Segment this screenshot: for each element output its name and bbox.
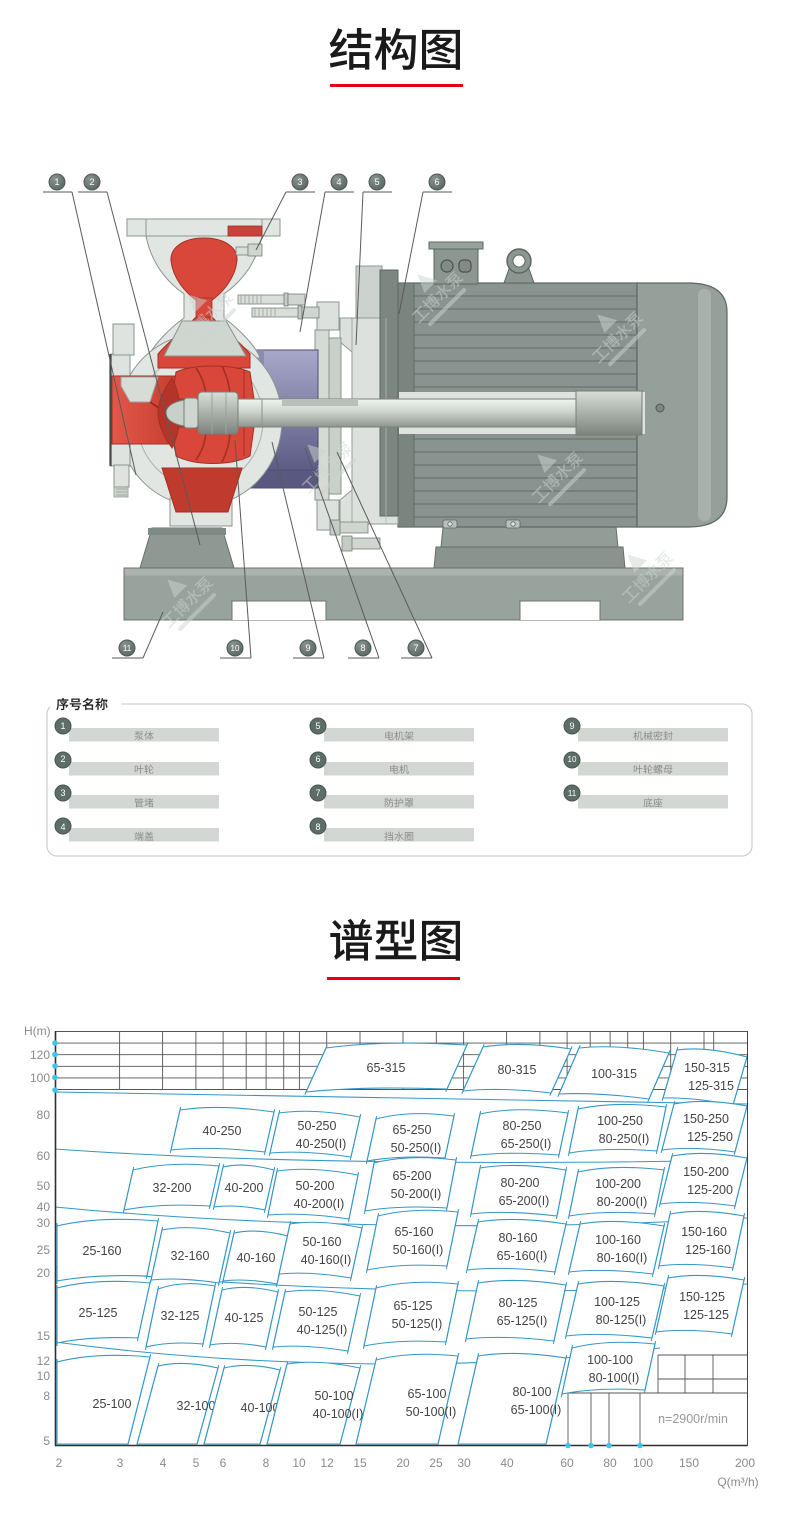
svg-text:50-125: 50-125 [299, 1305, 338, 1319]
svg-text:125-160: 125-160 [685, 1243, 731, 1257]
svg-text:65-100(I): 65-100(I) [511, 1403, 562, 1417]
svg-text:7: 7 [413, 643, 418, 653]
svg-text:150-250: 150-250 [683, 1112, 729, 1126]
svg-text:40-160(I): 40-160(I) [301, 1253, 352, 1267]
svg-text:100: 100 [30, 1071, 50, 1085]
svg-text:2: 2 [56, 1456, 63, 1470]
svg-text:100-160: 100-160 [595, 1233, 641, 1247]
svg-text:8: 8 [263, 1456, 270, 1470]
svg-text:6: 6 [220, 1456, 227, 1470]
svg-text:80-100: 80-100 [513, 1385, 552, 1399]
svg-text:80-125: 80-125 [499, 1296, 538, 1310]
svg-text:50-100(I): 50-100(I) [406, 1405, 457, 1419]
svg-text:40-200(I): 40-200(I) [294, 1197, 345, 1211]
svg-text:40-125: 40-125 [225, 1311, 264, 1325]
svg-text:2: 2 [60, 754, 65, 764]
svg-text:9: 9 [569, 721, 574, 731]
svg-text:3: 3 [117, 1456, 124, 1470]
svg-text:50-250: 50-250 [298, 1119, 337, 1133]
svg-text:40-125(I): 40-125(I) [297, 1323, 348, 1337]
svg-text:80-125(I): 80-125(I) [596, 1313, 647, 1327]
svg-text:200: 200 [735, 1456, 755, 1470]
svg-text:25-100: 25-100 [93, 1397, 132, 1411]
svg-text:65-125(I): 65-125(I) [497, 1314, 548, 1328]
svg-text:10: 10 [231, 644, 240, 653]
svg-text:50-200: 50-200 [296, 1179, 335, 1193]
svg-text:150-160: 150-160 [681, 1225, 727, 1239]
svg-text:80: 80 [37, 1108, 51, 1122]
svg-text:80-250: 80-250 [503, 1119, 542, 1133]
svg-text:40-100: 40-100 [241, 1401, 280, 1415]
svg-text:6: 6 [434, 177, 439, 187]
svg-text:10: 10 [292, 1456, 306, 1470]
svg-text:65-250: 65-250 [393, 1123, 432, 1137]
svg-text:120: 120 [30, 1048, 50, 1062]
svg-text:125-250: 125-250 [687, 1130, 733, 1144]
svg-text:15: 15 [37, 1329, 51, 1343]
svg-text:150-315: 150-315 [684, 1061, 730, 1075]
svg-text:100: 100 [633, 1456, 653, 1470]
svg-text:11: 11 [123, 644, 132, 653]
svg-text:8: 8 [43, 1389, 50, 1403]
svg-text:50-125(I): 50-125(I) [392, 1317, 443, 1331]
svg-text:8: 8 [315, 822, 320, 832]
svg-text:50-160(I): 50-160(I) [393, 1243, 444, 1257]
svg-text:80-250(I): 80-250(I) [599, 1132, 650, 1146]
svg-text:65-250(I): 65-250(I) [501, 1137, 552, 1151]
svg-text:80: 80 [603, 1456, 617, 1470]
svg-text:40-250(I): 40-250(I) [296, 1137, 347, 1151]
svg-text:125-125: 125-125 [683, 1308, 729, 1322]
svg-text:150-125: 150-125 [679, 1290, 725, 1304]
svg-text:65-160(I): 65-160(I) [497, 1249, 548, 1263]
svg-text:25: 25 [429, 1456, 443, 1470]
svg-text:40: 40 [37, 1200, 51, 1214]
svg-text:4: 4 [160, 1456, 167, 1470]
svg-text:4: 4 [336, 177, 341, 187]
svg-text:100-315: 100-315 [591, 1067, 637, 1081]
svg-text:65-100: 65-100 [408, 1387, 447, 1401]
svg-text:25: 25 [37, 1243, 51, 1257]
svg-text:5: 5 [193, 1456, 200, 1470]
svg-text:100-125: 100-125 [594, 1295, 640, 1309]
svg-text:6: 6 [315, 754, 320, 764]
svg-text:3: 3 [297, 177, 302, 187]
svg-text:150-200: 150-200 [683, 1165, 729, 1179]
svg-text:10: 10 [37, 1369, 51, 1383]
svg-text:50-250(I): 50-250(I) [391, 1141, 442, 1155]
svg-text:5: 5 [315, 721, 320, 731]
svg-text:Q(m³/h): Q(m³/h) [717, 1475, 758, 1489]
svg-text:50-200(I): 50-200(I) [391, 1187, 442, 1201]
svg-text:1: 1 [54, 177, 59, 187]
svg-text:5: 5 [374, 177, 379, 187]
svg-text:12: 12 [320, 1456, 334, 1470]
svg-text:7: 7 [315, 788, 320, 798]
svg-text:80-160(I): 80-160(I) [597, 1251, 648, 1265]
svg-text:40: 40 [500, 1456, 514, 1470]
svg-text:125-315: 125-315 [688, 1079, 734, 1093]
svg-text:40-160: 40-160 [237, 1251, 276, 1265]
svg-text:30: 30 [37, 1216, 51, 1230]
svg-text:32-200: 32-200 [153, 1181, 192, 1195]
svg-text:40-200: 40-200 [225, 1181, 264, 1195]
svg-text:50: 50 [37, 1179, 51, 1193]
svg-text:65-160: 65-160 [395, 1225, 434, 1239]
svg-text:100-100: 100-100 [587, 1353, 633, 1367]
svg-text:32-125: 32-125 [161, 1309, 200, 1323]
svg-text:5: 5 [43, 1434, 50, 1448]
svg-text:11: 11 [568, 789, 577, 798]
svg-text:n=2900r/min: n=2900r/min [658, 1412, 728, 1426]
svg-text:80-160: 80-160 [499, 1231, 538, 1245]
svg-text:1: 1 [60, 721, 65, 731]
svg-text:80-100(I): 80-100(I) [589, 1371, 640, 1385]
svg-text:65-200: 65-200 [393, 1169, 432, 1183]
svg-text:80-315: 80-315 [498, 1063, 537, 1077]
svg-text:60: 60 [37, 1149, 51, 1163]
svg-text:40-250: 40-250 [203, 1124, 242, 1138]
svg-text:60: 60 [560, 1456, 574, 1470]
svg-text:30: 30 [457, 1456, 471, 1470]
svg-text:125-200: 125-200 [687, 1183, 733, 1197]
svg-text:80-200(I): 80-200(I) [597, 1195, 648, 1209]
svg-text:25-160: 25-160 [83, 1244, 122, 1258]
svg-text:25-125: 25-125 [79, 1306, 118, 1320]
svg-text:3: 3 [60, 788, 65, 798]
svg-text:32-100: 32-100 [177, 1399, 216, 1413]
svg-text:10: 10 [568, 755, 577, 764]
svg-text:20: 20 [396, 1456, 410, 1470]
svg-text:50-160: 50-160 [303, 1235, 342, 1249]
svg-text:100-200: 100-200 [595, 1177, 641, 1191]
svg-text:20: 20 [37, 1266, 51, 1280]
svg-text:65-200(I): 65-200(I) [499, 1194, 550, 1208]
svg-text:8: 8 [360, 643, 365, 653]
svg-text:100-250: 100-250 [597, 1114, 643, 1128]
svg-text:65-125: 65-125 [394, 1299, 433, 1313]
svg-text:12: 12 [37, 1354, 51, 1368]
svg-text:4: 4 [60, 822, 65, 832]
svg-text:15: 15 [353, 1456, 367, 1470]
svg-text:32-160: 32-160 [171, 1249, 210, 1263]
svg-text:9: 9 [305, 643, 310, 653]
svg-text:2: 2 [89, 177, 94, 187]
svg-text:65-315: 65-315 [367, 1061, 406, 1075]
svg-text:50-100: 50-100 [315, 1389, 354, 1403]
svg-text:H(m): H(m) [24, 1024, 51, 1038]
svg-text:150: 150 [679, 1456, 699, 1470]
svg-text:80-200: 80-200 [501, 1176, 540, 1190]
svg-text:40-100(I): 40-100(I) [313, 1407, 364, 1421]
